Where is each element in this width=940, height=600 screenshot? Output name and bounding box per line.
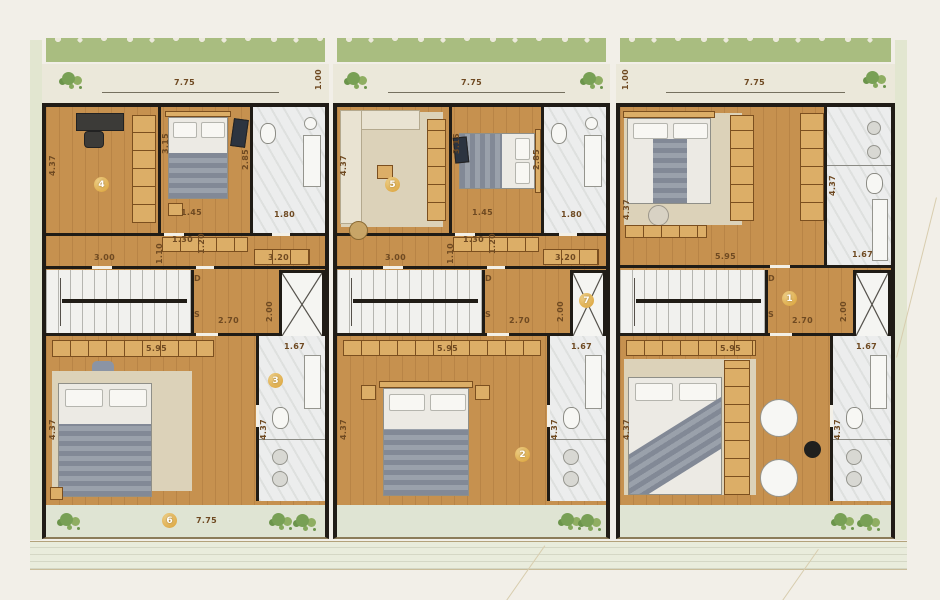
dimension-label: 2.85 bbox=[533, 149, 541, 170]
blanket bbox=[59, 424, 151, 496]
dimension-label: 4.37 bbox=[260, 419, 268, 440]
shower-head bbox=[867, 145, 881, 159]
dimension-label: 1.45 bbox=[472, 209, 493, 217]
shower-head bbox=[846, 449, 862, 465]
floor-structure: 1 4.37 5.95 4.37 bbox=[616, 103, 895, 513]
plant bbox=[866, 71, 879, 84]
blanket bbox=[169, 153, 227, 198]
dimension-label: 2.70 bbox=[792, 317, 813, 325]
dimension-label: 1.20 bbox=[198, 233, 206, 254]
wall bbox=[620, 265, 891, 268]
dimension-label: 1.80 bbox=[561, 211, 582, 219]
room-badge: 1 bbox=[782, 291, 797, 306]
stair-label: D bbox=[768, 275, 775, 283]
vanity bbox=[303, 135, 321, 187]
dimension-label: 3.00 bbox=[94, 254, 115, 262]
elevator-shaft bbox=[279, 270, 325, 339]
plant bbox=[860, 514, 873, 527]
dimension-label: 4.37 bbox=[340, 155, 348, 176]
dimension-label: 1.00 bbox=[622, 69, 630, 90]
side-table bbox=[804, 441, 821, 458]
dimension-label: 2.70 bbox=[218, 317, 239, 325]
blanket bbox=[384, 429, 468, 495]
hedge bbox=[337, 38, 606, 62]
balcony bbox=[616, 505, 895, 539]
room-badge: 2 bbox=[515, 447, 530, 462]
shower-divider bbox=[827, 165, 891, 166]
tv bbox=[230, 118, 249, 148]
wardrobe bbox=[800, 113, 824, 221]
armchair bbox=[760, 459, 798, 497]
stair-handrail bbox=[353, 299, 478, 303]
door-opening bbox=[770, 265, 790, 268]
dimension-label: 7.75 bbox=[174, 79, 195, 87]
plant bbox=[62, 72, 75, 85]
dimension-label: 5.95 bbox=[715, 253, 736, 261]
elevator-shaft bbox=[853, 270, 891, 339]
dimension-label: 1.00 bbox=[315, 69, 323, 90]
plant bbox=[60, 513, 73, 526]
dimension-label: 1.45 bbox=[181, 209, 202, 217]
room-badge: 6 bbox=[162, 513, 177, 528]
unit-left: 7.75 1.00 4 bbox=[42, 64, 329, 540]
stairs bbox=[46, 270, 194, 333]
plant bbox=[272, 513, 285, 526]
shower-head bbox=[563, 471, 579, 487]
dimension-label: 1.30 bbox=[172, 236, 193, 244]
dimension-label: 1.67 bbox=[571, 343, 592, 351]
bed bbox=[383, 388, 469, 496]
dimension-label: 1.30 bbox=[463, 236, 484, 244]
vanity bbox=[872, 199, 888, 261]
desk bbox=[625, 225, 707, 238]
floor-plan-canvas: 7.75 1.00 4 bbox=[0, 0, 940, 600]
armchair bbox=[760, 399, 798, 437]
blanket bbox=[653, 139, 687, 203]
wardrobe bbox=[52, 340, 214, 357]
wall bbox=[46, 266, 325, 269]
pillow bbox=[430, 394, 466, 411]
room-badge: 4 bbox=[94, 177, 109, 192]
dimension-label: 2.00 bbox=[266, 301, 274, 322]
floor-structure: 4 bbox=[42, 103, 329, 513]
dimension-label: 3.20 bbox=[268, 254, 289, 262]
stair-label: S bbox=[768, 311, 774, 319]
pillow bbox=[515, 138, 530, 160]
elevator-x-icon bbox=[856, 273, 888, 336]
stairs bbox=[620, 270, 768, 333]
pillow bbox=[109, 389, 147, 407]
toilet bbox=[563, 407, 580, 429]
unit-middle: 7.75 5 bbox=[333, 64, 610, 540]
plant bbox=[583, 72, 596, 85]
toilet bbox=[551, 123, 567, 144]
vanity bbox=[304, 355, 321, 409]
side-grass-strip bbox=[895, 40, 907, 540]
shower-head bbox=[272, 449, 288, 465]
dimension-label: 2.85 bbox=[242, 149, 250, 170]
nightstand bbox=[361, 385, 376, 400]
dimension-label: 4.37 bbox=[49, 155, 57, 176]
dimension-label: 5.95 bbox=[720, 345, 741, 353]
front-yard: 7.75 bbox=[333, 64, 610, 103]
dimension-label: 3.15 bbox=[453, 133, 461, 154]
door-opening bbox=[272, 233, 290, 236]
stairs bbox=[337, 270, 485, 333]
hedge bbox=[46, 38, 325, 62]
dimension-label: 3.20 bbox=[555, 254, 576, 262]
wall bbox=[824, 107, 827, 267]
door-opening bbox=[487, 266, 505, 269]
nightstand bbox=[475, 385, 490, 400]
wardrobe bbox=[132, 115, 156, 223]
elevator-x-icon bbox=[282, 273, 322, 336]
floor-structure: 5 7 bbox=[333, 103, 610, 513]
pillow bbox=[515, 162, 530, 184]
unit-right: 7.75 1.00 bbox=[616, 64, 895, 540]
door-opening bbox=[196, 266, 214, 269]
room-badge: 7 bbox=[579, 293, 594, 308]
door-opening bbox=[487, 333, 509, 336]
door-opening bbox=[92, 266, 112, 269]
chair bbox=[84, 131, 104, 148]
pillow bbox=[635, 383, 673, 401]
front-yard: 7.75 1.00 bbox=[42, 64, 329, 103]
door-opening bbox=[770, 333, 792, 336]
blanket bbox=[628, 388, 722, 495]
stair-direction-arrow bbox=[60, 278, 61, 326]
dimension-label: 3.15 bbox=[162, 133, 170, 154]
dimension-label: 5.95 bbox=[437, 345, 458, 353]
plant bbox=[561, 513, 574, 526]
stair-handrail bbox=[62, 299, 187, 303]
dimension-label: 4.37 bbox=[340, 419, 348, 440]
toilet bbox=[846, 407, 863, 429]
wardrobe bbox=[730, 115, 754, 221]
dimension-label: 7.75 bbox=[196, 517, 217, 525]
shower-head bbox=[846, 471, 862, 487]
shower-head bbox=[272, 471, 288, 487]
bed bbox=[58, 383, 152, 497]
side-grass-strip bbox=[30, 40, 42, 540]
bed bbox=[627, 118, 711, 204]
hedge bbox=[620, 38, 891, 62]
dimension-label: 1.10 bbox=[156, 243, 164, 264]
desk bbox=[76, 113, 124, 131]
wall bbox=[337, 266, 606, 269]
toilet bbox=[866, 173, 883, 194]
vanity bbox=[584, 135, 602, 187]
balcony bbox=[333, 505, 610, 539]
dimension-label: 2.70 bbox=[509, 317, 530, 325]
plant bbox=[347, 72, 360, 85]
bed bbox=[628, 377, 722, 495]
dimension-label: 4.37 bbox=[551, 419, 559, 440]
stair-label: S bbox=[194, 311, 200, 319]
dimension-label: 2.00 bbox=[840, 301, 848, 322]
sidewalk bbox=[30, 541, 907, 570]
plant bbox=[581, 514, 594, 527]
dimension-label: 1.67 bbox=[284, 343, 305, 351]
toilet bbox=[260, 123, 276, 144]
dimension-label: 4.37 bbox=[829, 175, 837, 196]
pillow bbox=[633, 123, 668, 139]
pillow bbox=[679, 383, 717, 401]
dimension-label: 1.67 bbox=[852, 251, 873, 259]
bed-headboard bbox=[623, 111, 715, 118]
dimension-label: 7.75 bbox=[744, 79, 765, 87]
wardrobe bbox=[724, 360, 750, 495]
dimension-line bbox=[388, 92, 565, 93]
stair-label: D bbox=[485, 275, 492, 283]
pillow bbox=[673, 123, 708, 139]
stair-direction-arrow bbox=[634, 278, 635, 326]
dimension-label: 4.37 bbox=[623, 199, 631, 220]
room-badge: 5 bbox=[385, 177, 400, 192]
wall bbox=[250, 107, 253, 235]
stair-label: S bbox=[485, 311, 491, 319]
shower-head bbox=[867, 121, 881, 135]
pillow bbox=[65, 389, 103, 407]
pillow bbox=[201, 122, 225, 138]
sink bbox=[585, 117, 598, 130]
room-badge: 3 bbox=[268, 373, 283, 388]
shower-divider bbox=[259, 439, 325, 440]
tv-cabinet bbox=[427, 119, 446, 221]
dimension-label: 2.00 bbox=[557, 301, 565, 322]
chair bbox=[648, 205, 669, 226]
stair-label: D bbox=[194, 275, 201, 283]
sink bbox=[304, 117, 317, 130]
door-opening bbox=[559, 233, 577, 236]
wall bbox=[541, 107, 544, 235]
bed bbox=[459, 133, 535, 189]
pillow bbox=[389, 394, 425, 411]
stair-handrail bbox=[636, 299, 761, 303]
dimension-label: 1.80 bbox=[274, 211, 295, 219]
vanity bbox=[585, 355, 602, 409]
shower-head bbox=[563, 449, 579, 465]
toilet bbox=[272, 407, 289, 429]
dimension-label: 7.75 bbox=[461, 79, 482, 87]
wall bbox=[158, 107, 161, 235]
dimension-label: 1.10 bbox=[447, 243, 455, 264]
dimension-label: 1.67 bbox=[856, 343, 877, 351]
dimension-label: 4.37 bbox=[834, 419, 842, 440]
balcony: 6 7.75 bbox=[42, 505, 329, 539]
bed bbox=[168, 117, 228, 199]
door-opening bbox=[196, 333, 218, 336]
bed-headboard bbox=[379, 381, 473, 388]
front-yard: 7.75 1.00 bbox=[616, 64, 895, 103]
nightstand bbox=[50, 487, 63, 500]
dimension-label: 4.37 bbox=[49, 419, 57, 440]
plant bbox=[834, 513, 847, 526]
dimension-label: 1.20 bbox=[489, 233, 497, 254]
dimension-line bbox=[666, 92, 845, 93]
door-opening bbox=[383, 266, 403, 269]
dimension-label: 3.00 bbox=[385, 254, 406, 262]
stair-direction-arrow bbox=[351, 278, 352, 326]
vanity bbox=[870, 355, 887, 409]
dimension-label: 4.37 bbox=[623, 419, 631, 440]
pillow bbox=[173, 122, 197, 138]
dimension-label: 5.95 bbox=[146, 345, 167, 353]
wall bbox=[449, 107, 452, 235]
pouf bbox=[349, 221, 368, 240]
plant bbox=[296, 514, 309, 527]
dimension-line bbox=[102, 92, 279, 93]
